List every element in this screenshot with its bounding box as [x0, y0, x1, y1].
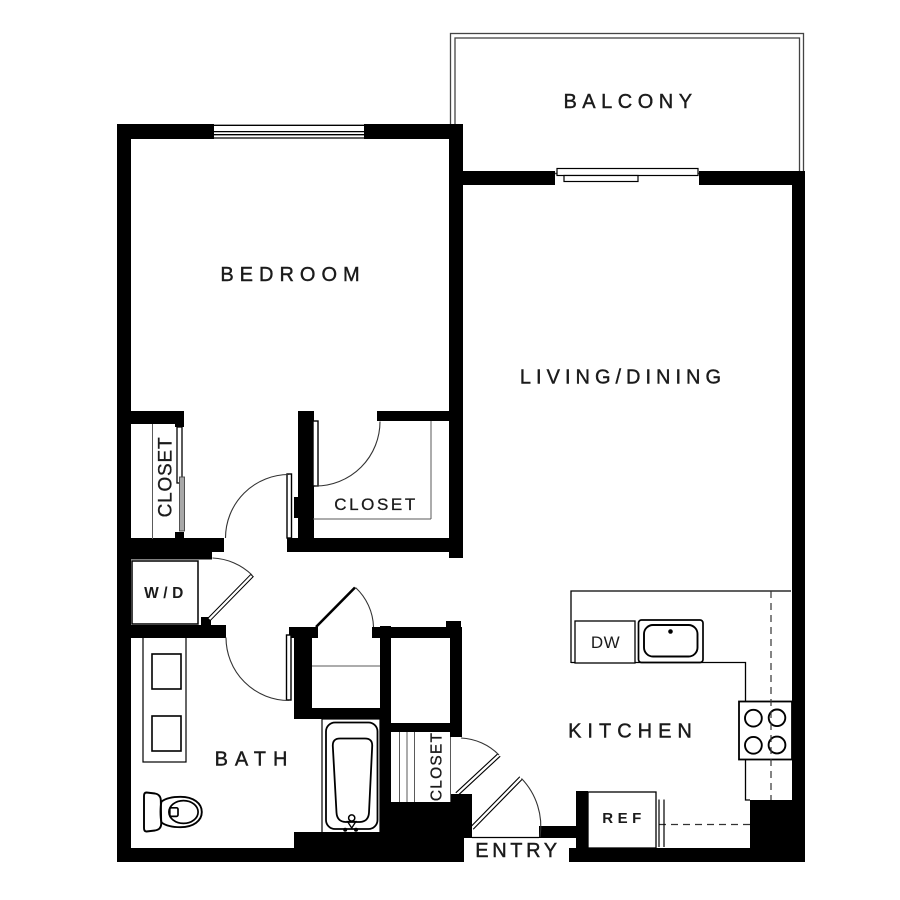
svg-text:BEDROOM: BEDROOM [220, 264, 365, 286]
svg-text:ENTRY: ENTRY [475, 840, 560, 862]
svg-text:REF: REF [602, 810, 646, 827]
svg-text:CLOSET: CLOSET [334, 495, 418, 514]
svg-text:BALCONY: BALCONY [563, 91, 697, 113]
svg-text:CLOSET: CLOSET [429, 732, 446, 801]
svg-text:DW: DW [591, 633, 620, 652]
svg-text:KITCHEN: KITCHEN [568, 721, 698, 743]
svg-text:CLOSET: CLOSET [156, 437, 177, 518]
svg-text:LIVING/DINING: LIVING/DINING [520, 367, 726, 389]
svg-text:W/D: W/D [144, 585, 188, 602]
svg-text:BATH: BATH [215, 749, 295, 771]
